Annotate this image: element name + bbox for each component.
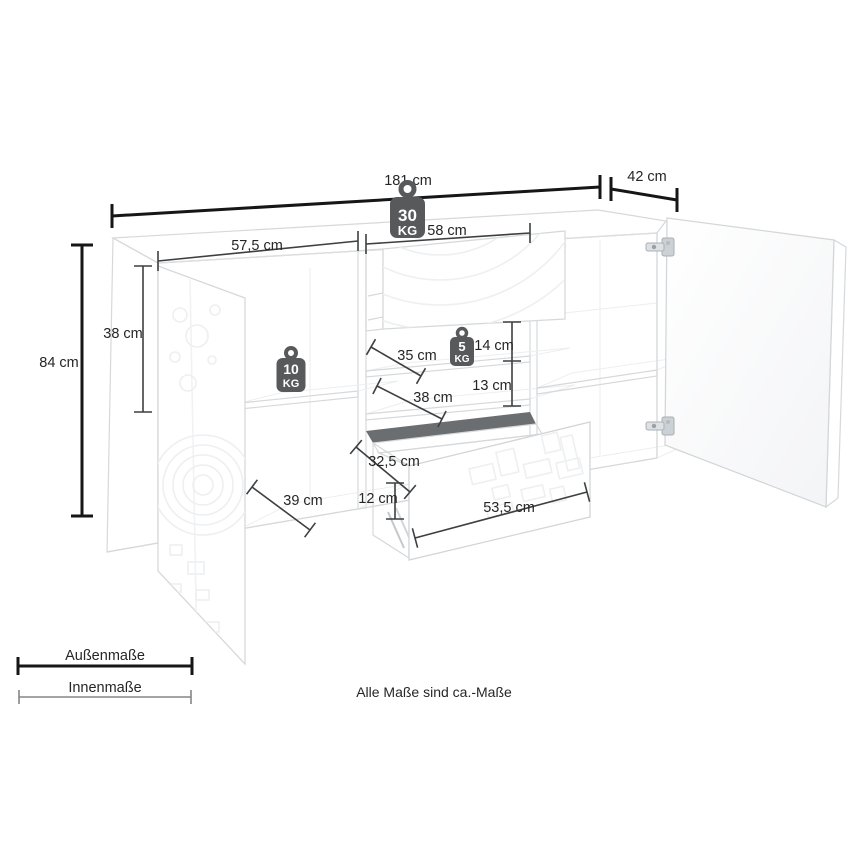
dim-total-height: 84 cm (39, 245, 93, 516)
dim-label-center-top-gap: 14 cm (474, 338, 514, 354)
center-flap-door (260, 0, 620, 331)
dim-center-bottom-depth: 38 cm (373, 378, 453, 427)
dim-left-shelf-depth: 39 cm (247, 480, 323, 537)
legend-inner-label: Innenmaße (68, 680, 141, 696)
door-hinge-top-icon (646, 238, 674, 256)
dim-center-shelf-depth: 35 cm (367, 339, 437, 384)
dim-label-center-shelf-depth: 35 cm (397, 348, 437, 364)
dim-label-left-shelf-depth: 39 cm (283, 493, 323, 509)
flap-front-panel (383, 231, 565, 329)
weight-10-value: 10 (283, 361, 299, 377)
bottom-edge-left (107, 543, 158, 552)
legend-outer-label: Außenmaße (65, 648, 145, 664)
left-door (153, 266, 253, 664)
dim-left-section-width: 57,5 cm (158, 231, 358, 271)
flap-gap-inner-line (368, 293, 383, 296)
drawer (366, 412, 590, 560)
weight-5-value: 5 (458, 339, 465, 354)
door-hinge-bottom-icon (646, 417, 674, 435)
weight-10-unit: KG (283, 378, 300, 390)
dim-label-center-section-width: 58 cm (427, 223, 467, 239)
furniture-dimension-diagram: 181 cm 42 cm 84 cm 38 cm 57,5 cm (0, 0, 868, 868)
dim-label-center-bottom-gap: 13 cm (472, 378, 512, 394)
dim-label-drawer-inner-height: 12 cm (358, 491, 398, 507)
left-section-shelf (240, 381, 398, 409)
dim-label-drawer-front-width: 53,5 cm (483, 500, 535, 516)
dim-label-total-height: 84 cm (39, 355, 79, 371)
flap-gap-inner-line2 (368, 317, 383, 320)
dim-label-total-depth: 42 cm (627, 169, 667, 185)
drawer-front-panel (409, 422, 590, 560)
weight-badge-5kg: 5 KG (450, 329, 474, 367)
dim-total-depth: 42 cm (611, 169, 677, 212)
dim-total-width: 181 cm (112, 173, 600, 228)
weight-handle-icon (401, 183, 414, 196)
drawer-rail-icon (388, 512, 404, 548)
dim-label-left-section-width: 57,5 cm (231, 238, 283, 254)
weight-handle-icon (458, 329, 467, 338)
cabinet-left-side (107, 238, 158, 552)
weight-30-unit: KG (398, 223, 418, 238)
weight-handle-icon (286, 348, 296, 358)
right-door (646, 218, 846, 507)
diagram-canvas: 181 cm 42 cm 84 cm 38 cm 57,5 cm (0, 0, 868, 868)
weight-5-unit: KG (455, 354, 470, 365)
dim-label-center-bottom-depth: 38 cm (413, 390, 453, 406)
dim-label-left-door-inner-height: 38 cm (103, 326, 143, 342)
dim-label-drawer-depth: 32,5 cm (368, 454, 420, 470)
center-lower-shelf (366, 385, 575, 420)
legend: Außenmaße Innenmaße (18, 648, 192, 704)
right-door-panel (665, 218, 834, 507)
weight-badge-30kg: 30 KG (390, 183, 425, 239)
weight-badge-10kg: 10 KG (277, 348, 306, 392)
footnote: Alle Maße sind ca.-Maße (356, 684, 512, 700)
flap-arc-pattern (260, 0, 620, 330)
partition-left-center (358, 250, 366, 509)
